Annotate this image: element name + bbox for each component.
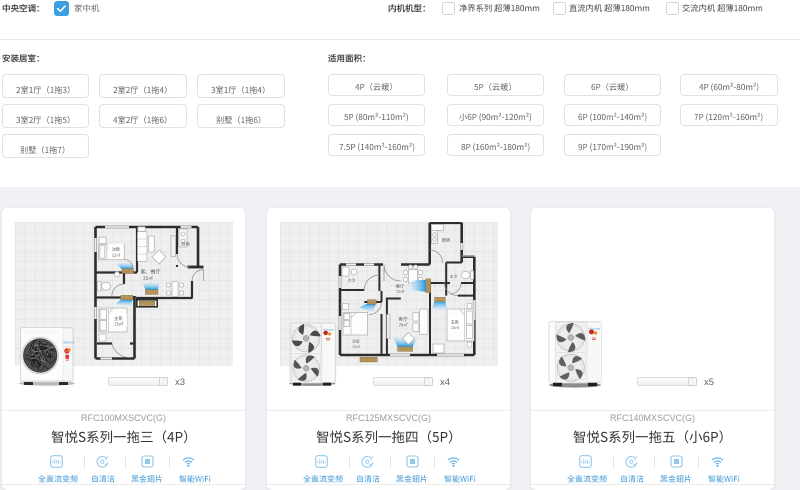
svg-text:Hisense: Hisense [62, 341, 74, 345]
